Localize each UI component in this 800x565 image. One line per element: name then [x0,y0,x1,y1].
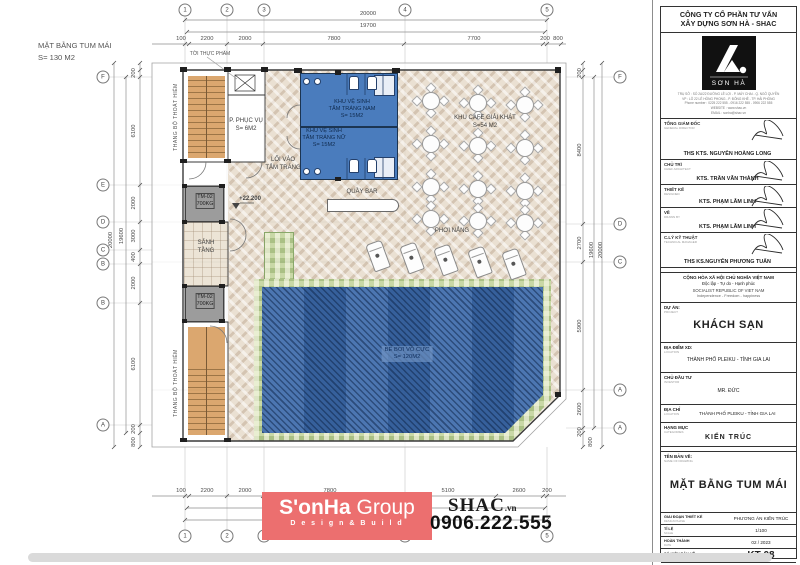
grid-faint-lines [152,63,566,447]
brand-tagline: D e s i g n & B u i l d [262,520,432,527]
field-categories: HẠNG MỤCCATEGORIESKIẾN TRÚC [661,423,796,447]
title-block: CÔNG TY CỔ PHẦN TƯ VẤNXÂY DỰNG SƠN HÀ - … [660,6,797,559]
signature-mark [748,120,786,144]
dimension-chain-lines [114,20,602,520]
drawing-title-line2: S= 130 M2 [38,52,112,64]
brand-text: S'onHa [279,496,351,519]
signature-row: VẼDRAWN BYKTS. PHẠM LÂM LINH [661,208,796,233]
field-name-of-drawing: TÊN BẢN VẼ:NAME OF DRAWINGMẶT BẰNG TUM M… [661,451,796,513]
phone-watermark: 0906.222.555 [430,513,552,535]
company-name: CÔNG TY CỔ PHẦN TƯ VẤNXÂY DỰNG SƠN HÀ - … [661,7,796,33]
dimension-ticks [112,18,604,522]
drawing-title: MẶT BẰNG TUM MÁI S= 130 M2 [38,40,112,64]
interior-walls [183,70,383,441]
drawing-title-line1: MẶT BẰNG TUM MÁI [38,40,112,52]
company-logo-section: SƠN HÀTRỤ SỞ : SỐ 2A/22 ĐƯỜNG LÊ LỢI - P… [661,33,796,119]
republic-block: CỘNG HÒA XÃ HỘI CHỦ NGHĨA VIỆT NAMĐộc lậ… [661,272,796,303]
signature-row: CHỦ TRÌCHIEF ARCHITECTKTS. TRẦN VĂN THÀN… [661,160,796,185]
signature-row: THIẾT KẾDESIGNEDKTS. PHẠM LÂM LINH [661,185,796,208]
svg-text:SƠN HÀ: SƠN HÀ [711,78,745,87]
sonha-logo-text: S'onHa Group [262,495,432,520]
field-project: DỰ ÁN:PROJECTKHÁCH SẠN [661,303,796,343]
signature-mark [748,234,786,258]
structural-columns [180,67,561,442]
signature-mark [748,186,786,210]
sonha-logo-icon: SƠN HÀ [702,36,756,90]
shac-tld: .vn [505,503,517,513]
signature-row: TỔNG GIÁM ĐỐCGENERAL DIRECTORTHS KTS. NG… [661,119,796,160]
footer-scale: TỈ LỆSCALE1/100 [661,525,796,537]
footer-design-phase: GIAI ĐOẠN THIẾT KẾDESIGN PHASEPHƯƠNG ÁN … [661,513,796,525]
signature-row: C.LÝ KỸ THUẬTTECHNICAL MANAGERTHS KS.NGU… [661,233,796,268]
brand-suffix: Group [356,496,414,519]
property-boundary [152,63,566,447]
door-arcs [189,57,300,343]
footer-date: HOÀN THÀNHDATE02 / 2023 [661,537,796,549]
field-investor: CHỦ ĐẦU TƯINVESTORMR. ĐỨC [661,373,796,405]
drawing-sheet: MẶT BẰNG TUM MÁI S= 130 M2 [0,0,800,565]
horizontal-scrollbar[interactable] [28,553,772,562]
company-address: TRỤ SỞ : SỐ 2A/22 ĐƯỜNG LÊ LỢI - P. MÁY … [661,92,796,116]
extension-lines [108,14,614,530]
field-location: ĐỊA CHỈLOCATIONTHÀNH PHỐ PLEIKU - TỈNH G… [661,405,796,423]
sonha-group-watermark: S'onHa Group D e s i g n & B u i l d [262,492,432,540]
field-location: ĐỊA ĐIỂM XD:LOCATIONTHÀNH PHỐ PLEIKU - T… [661,343,796,373]
